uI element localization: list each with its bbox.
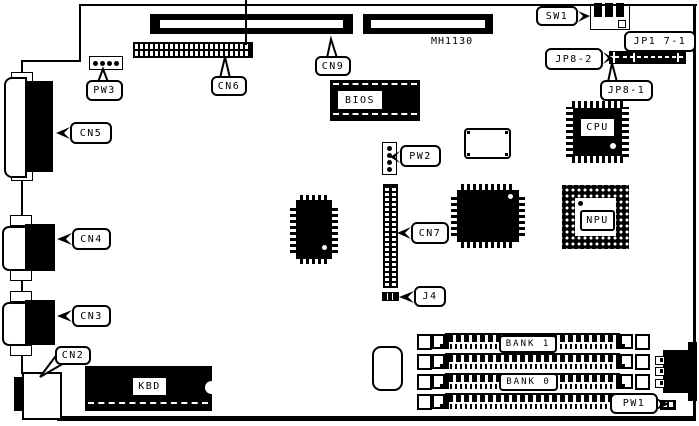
cn3-mount-tab-bottom xyxy=(10,345,32,356)
simm-hook xyxy=(432,334,445,349)
cn5-arrow xyxy=(56,127,70,139)
jp8-jumper-block xyxy=(609,51,686,64)
bios-label: BIOS xyxy=(337,90,383,110)
simm-end-post xyxy=(445,353,449,369)
hook-notch xyxy=(440,364,444,368)
cn4-mount-tab-bottom xyxy=(10,270,32,281)
pin-cell xyxy=(669,402,673,407)
pin-column xyxy=(385,186,389,286)
callout-sw1: SW1 xyxy=(536,6,578,26)
pin1-dot xyxy=(610,143,616,149)
simm-end-post xyxy=(445,373,449,389)
callout-cn6: CN6 xyxy=(211,76,247,96)
crystal-corner-mark xyxy=(505,153,508,156)
pin1-dot xyxy=(322,245,327,250)
simm-latch xyxy=(417,374,432,390)
crystal-corner-mark xyxy=(467,131,470,134)
hook-notch xyxy=(440,404,444,408)
callout-pw1: PW1 xyxy=(610,393,658,414)
callout-jp1-7-1: JP1 7-1 xyxy=(624,31,696,52)
pin-column xyxy=(392,186,396,286)
power-tab xyxy=(655,356,665,365)
callout-cn4: CN4 xyxy=(72,228,111,250)
cpu-pins-right xyxy=(621,107,629,157)
cn7-arrow xyxy=(397,227,411,239)
callout-pw3: PW3 xyxy=(86,80,123,101)
chip-pins-bottom xyxy=(461,241,515,248)
qfp-chip-horizontal xyxy=(451,184,525,248)
cn3-shell xyxy=(2,302,27,346)
pin-divider xyxy=(387,293,388,300)
tab-mark xyxy=(660,369,663,373)
callout-jp8-1: JP8-1 xyxy=(600,80,653,101)
bank1-label: BANK 1 xyxy=(499,335,557,353)
bios-chip: BIOS xyxy=(330,80,420,121)
cn3-connector-body xyxy=(25,300,55,345)
simm-contact-strip xyxy=(445,352,620,370)
socket-dash-bottom xyxy=(333,113,417,115)
switch-block xyxy=(605,3,613,17)
callout-jp8-2: JP8-2 xyxy=(545,48,603,70)
simm-hook xyxy=(620,354,633,369)
chip-notch xyxy=(205,381,212,394)
slot-opening xyxy=(160,20,343,28)
hook-notch xyxy=(621,364,625,368)
pw3-connector xyxy=(89,56,123,70)
crystal-oscillator xyxy=(464,128,511,159)
callout-pw2: PW2 xyxy=(400,145,441,167)
callout-cn9: CN9 xyxy=(315,56,351,76)
bank0-label: BANK 0 xyxy=(499,373,558,391)
silkscreen-text: MH1130 xyxy=(431,36,473,47)
simm-socket-row xyxy=(417,352,648,370)
kbd-chip: KBD xyxy=(85,366,212,411)
pin1-dot xyxy=(578,201,583,206)
simm-pins xyxy=(450,364,615,369)
simm-contact-strip xyxy=(445,392,620,410)
callout-cn7: CN7 xyxy=(411,222,449,244)
simm-hook xyxy=(620,334,633,349)
simm-latch xyxy=(635,354,650,370)
board-edge-notch-horizontal xyxy=(21,60,81,62)
pin-row xyxy=(135,51,248,56)
crystal-corner-mark xyxy=(505,131,508,134)
simm-hook xyxy=(432,374,445,389)
jumper-mark xyxy=(677,53,679,62)
npu-label: NPU xyxy=(580,210,615,231)
pin1-dot xyxy=(508,194,513,199)
cn2-connector-body xyxy=(22,372,62,420)
crystal-corner-mark xyxy=(467,153,470,156)
board-edge-notch-vertical xyxy=(79,4,81,62)
pin-row xyxy=(135,44,248,49)
callout-j4: J4 xyxy=(414,286,446,307)
cn6-tail xyxy=(220,57,230,78)
chip-pins-right xyxy=(331,205,338,253)
simm-contacts xyxy=(448,395,617,402)
pin-cell xyxy=(663,402,667,407)
simm-latch xyxy=(417,394,432,410)
simm-hook xyxy=(620,374,633,389)
cn6-pin-header xyxy=(133,42,253,58)
switch-detail xyxy=(618,20,626,28)
pin xyxy=(387,160,392,165)
power-tab xyxy=(655,367,665,376)
cn4-connector-body xyxy=(25,224,55,271)
cpu-body: CPU xyxy=(573,108,622,156)
cn4-shell xyxy=(2,226,27,271)
jumper-mark xyxy=(623,56,683,58)
pin xyxy=(107,61,112,66)
cn5-connector-body xyxy=(26,81,53,172)
pin xyxy=(100,61,105,66)
hook-notch xyxy=(621,384,625,388)
sw1-dip-switch xyxy=(590,5,630,30)
pin xyxy=(93,61,98,66)
slot-opening xyxy=(371,20,485,28)
cpu-label: CPU xyxy=(581,119,614,136)
cpu-chip: CPU xyxy=(566,101,629,163)
hook-notch xyxy=(621,344,625,348)
board-edge-bottom xyxy=(57,416,696,421)
simm-latch xyxy=(635,374,650,390)
pin xyxy=(387,153,392,158)
switch-block xyxy=(616,3,624,17)
simm-end-post xyxy=(445,393,449,409)
chip-pins-right xyxy=(518,196,525,236)
simm-hook xyxy=(432,394,445,409)
socket-dash-top xyxy=(333,83,417,85)
callout-cn5: CN5 xyxy=(70,122,112,144)
hook-notch xyxy=(440,384,444,388)
tab-mark xyxy=(660,381,663,385)
pin xyxy=(387,146,392,151)
j4-connector xyxy=(382,292,399,301)
simm-latch xyxy=(417,334,432,350)
j4-arrow xyxy=(399,291,414,303)
cn3-arrow xyxy=(57,310,72,322)
cn7-pin-header xyxy=(383,184,398,288)
simm-hook xyxy=(432,354,445,369)
pin-divider xyxy=(392,293,393,300)
power-tab xyxy=(655,379,665,388)
pw1-connector xyxy=(660,400,676,410)
pin xyxy=(114,61,119,66)
chip-body xyxy=(296,200,332,259)
callout-cn2: CN2 xyxy=(55,346,91,365)
chip-body xyxy=(457,190,519,242)
expansion-slot-right xyxy=(363,14,493,34)
jumper-mark xyxy=(610,56,619,58)
sw1-arrow xyxy=(578,11,590,22)
qfp-chip-vertical xyxy=(290,195,338,264)
simm-latch xyxy=(417,354,432,370)
callout-cn3: CN3 xyxy=(72,305,111,327)
cn5-shell xyxy=(4,77,27,178)
motherboard-diagram: MH1130 BIOS CPU xyxy=(0,0,699,426)
pw2-connector xyxy=(382,142,397,175)
simm-contacts xyxy=(448,355,617,362)
power-connector-step xyxy=(688,342,697,401)
switch-block xyxy=(594,3,602,17)
cpu-pins-bottom xyxy=(572,155,623,163)
simm-latch xyxy=(635,334,650,350)
socket-dash-bottom xyxy=(88,402,208,404)
npu-center: NPU xyxy=(575,198,616,236)
simm-pins xyxy=(450,404,615,409)
cn4-arrow xyxy=(57,233,72,245)
tab-mark xyxy=(660,358,663,362)
npu-socket: NPU xyxy=(562,185,629,249)
speaker-outline xyxy=(372,346,403,391)
hook-notch xyxy=(440,344,444,348)
pin xyxy=(387,167,392,172)
kbd-label: KBD xyxy=(132,377,167,396)
expansion-slot-left xyxy=(150,14,353,34)
riser-guide-line xyxy=(245,0,247,45)
simm-end-post xyxy=(445,333,449,349)
